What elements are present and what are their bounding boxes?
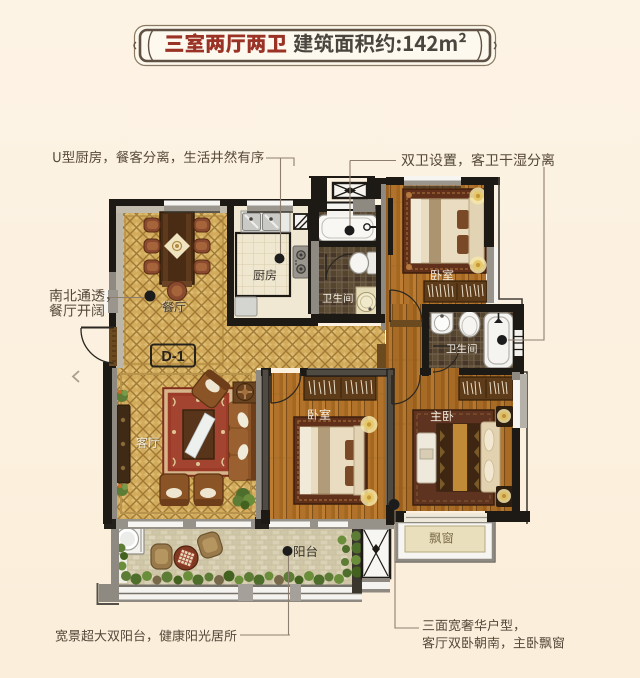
svg-text:D-1: D-1 bbox=[161, 349, 184, 365]
